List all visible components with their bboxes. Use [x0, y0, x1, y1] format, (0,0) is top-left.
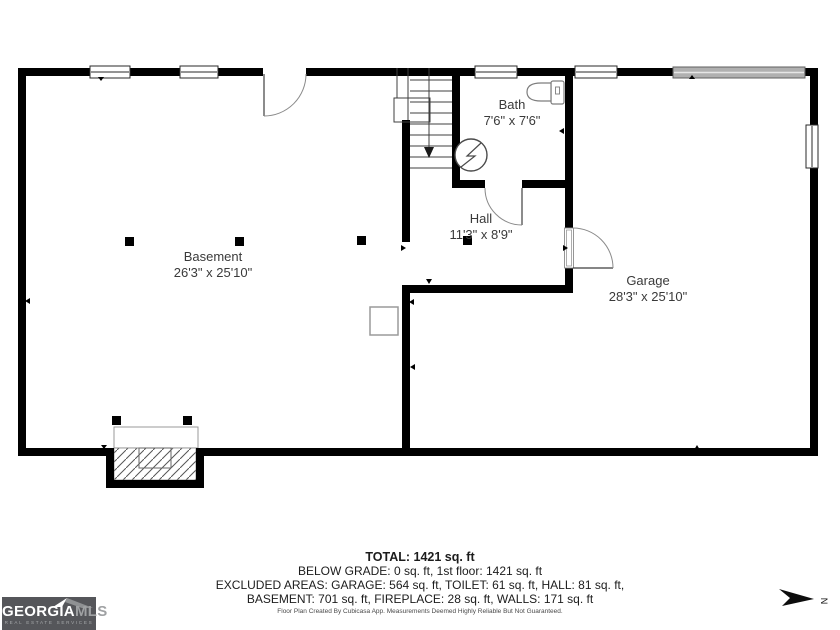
room-dimensions: 26'3" x 25'10" — [174, 265, 253, 281]
room-label-basement: Basement 26'3" x 25'10" — [174, 249, 253, 281]
summary-excluded-line1: EXCLUDED AREAS: GARAGE: 564 sq. ft, TOIL… — [0, 578, 840, 592]
door-swing-arc — [573, 228, 613, 268]
tick-marker — [410, 364, 415, 370]
room-label-bath: Bath 7'6" x 7'6" — [484, 97, 541, 129]
wall-hall-right-upper — [565, 76, 573, 228]
floorplan-drawing: N — [0, 0, 840, 630]
tick-marker — [559, 128, 564, 134]
logo-tagline: REAL ESTATE SERVICES — [2, 620, 96, 625]
room-dimensions: 7'6" x 7'6" — [484, 113, 541, 129]
fireplace — [106, 416, 204, 488]
post — [125, 237, 134, 246]
utility-pad — [370, 307, 398, 335]
fireplace-hearth — [114, 427, 198, 448]
hall-garage-door — [565, 228, 614, 268]
room-name: Garage — [609, 273, 688, 289]
post — [235, 237, 244, 246]
door-opening — [263, 66, 306, 78]
wall-hall-bottom — [402, 285, 573, 293]
room-name: Bath — [484, 97, 541, 113]
wall-bath-bottom-left — [452, 180, 485, 188]
room-name: Hall — [449, 211, 512, 227]
fireplace-hatch — [114, 448, 196, 480]
georgiamls-logo: GEORGIAMLS REAL ESTATE SERVICES — [2, 597, 96, 630]
fireplace-post — [183, 416, 192, 425]
room-dimensions: 28'3" x 25'10" — [609, 289, 688, 305]
water-heater-circle — [455, 139, 487, 171]
room-label-hall: Hall 11'3" x 8'9" — [449, 211, 512, 243]
area-summary: TOTAL: 1421 sq. ft BELOW GRADE: 0 sq. ft… — [0, 550, 840, 606]
logo-wordmark: GEORGIAMLS — [2, 604, 96, 619]
room-label-garage: Garage 28'3" x 25'10" — [609, 273, 688, 305]
fireplace-wall-bottom — [106, 480, 204, 488]
water-heater-icon — [455, 139, 487, 171]
fireplace-post — [112, 416, 121, 425]
room-dimensions: 11'3" x 8'9" — [449, 227, 512, 243]
summary-total: TOTAL: 1421 sq. ft — [0, 550, 840, 564]
wall-basement-garage-divider — [402, 285, 410, 456]
interior-walls — [402, 76, 573, 456]
wall-markers — [25, 75, 816, 450]
door-swing-arc — [264, 74, 306, 116]
basement-entry-door — [263, 66, 306, 116]
tick-marker — [694, 445, 700, 450]
wall-left — [18, 68, 26, 456]
floorplan-page: N Basement 26'3" x 25'10" Bath 7'6" x 7'… — [0, 0, 840, 630]
support-posts — [125, 236, 472, 246]
tick-marker — [98, 77, 104, 81]
post — [357, 236, 366, 245]
disclaimer-text: Floor Plan Created By Cubicasa App. Meas… — [0, 608, 840, 615]
summary-excluded-line2: BASEMENT: 701 sq. ft, FIREPLACE: 28 sq. … — [0, 592, 840, 606]
room-name: Basement — [174, 249, 253, 265]
tick-marker — [401, 245, 406, 251]
wall-stairs-left — [402, 120, 410, 242]
tick-marker — [426, 279, 432, 284]
toilet-button — [556, 87, 560, 94]
stair-direction-arrow — [424, 147, 434, 158]
summary-below-grade: BELOW GRADE: 0 sq. ft, 1st floor: 1421 s… — [0, 564, 840, 578]
outer-walls — [18, 68, 818, 456]
logo-brand: GEORGIA — [2, 603, 75, 620]
logo-brand-suffix: MLS — [75, 603, 108, 620]
